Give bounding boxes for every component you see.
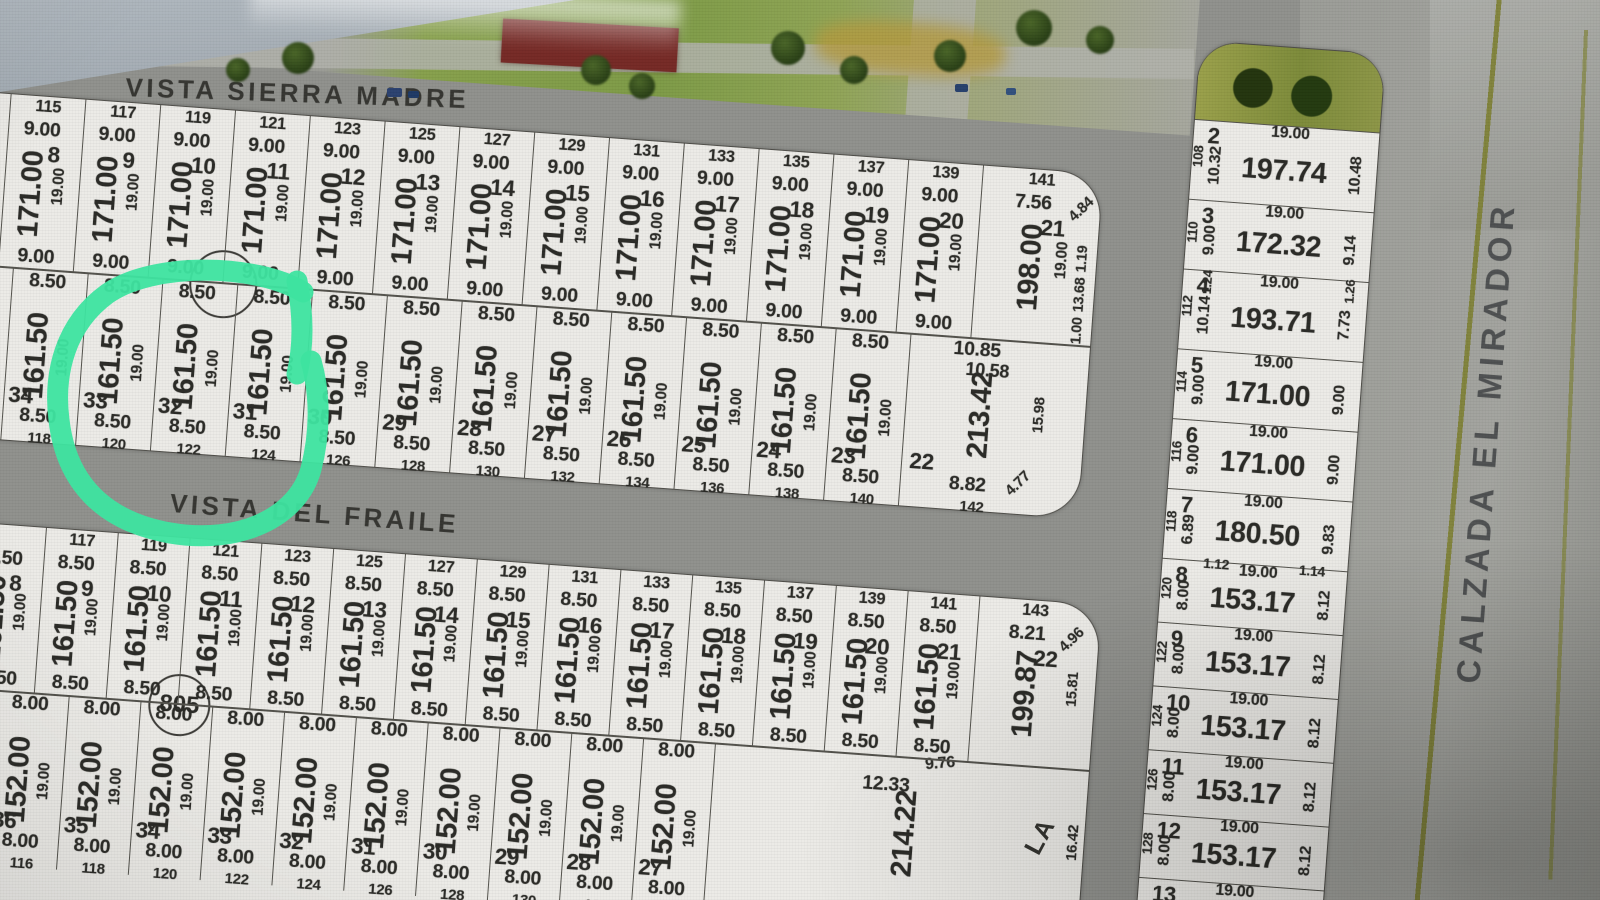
dim-separator: 19.00	[1254, 353, 1294, 374]
lot-area: 171.00	[1224, 376, 1312, 415]
dim-diagonal: 4.96	[1056, 624, 1088, 656]
dim-bottom-left: 1.12	[1203, 555, 1230, 573]
street-number: 132	[550, 468, 575, 487]
lot-area: 153.17	[1199, 709, 1287, 748]
tree-icon	[1016, 10, 1052, 46]
lot-width-bottom: 8.00	[144, 839, 182, 865]
lot-depth: 19.00	[465, 793, 486, 832]
lot-cell-21: 1418.5021161.5019.008.50	[896, 591, 981, 761]
lot-area: 171.00	[1219, 445, 1307, 484]
lot-width-bottom: 9.00	[839, 305, 877, 331]
lot-depth: 19.00	[123, 174, 144, 213]
lot-width: 7.56	[1014, 190, 1052, 216]
lot-width: 8.00	[155, 701, 193, 727]
lot-width-bottom: 8.00	[504, 865, 542, 891]
street-number: 135	[782, 152, 810, 173]
plat-map: VISTA SIERRA MADRE 1159.008171.0019.009.…	[0, 85, 1600, 900]
lot-cell-20: 1398.5020161.5019.008.50	[824, 586, 909, 756]
lot-cell-30: 8.00152.0019.00308.00128	[415, 721, 501, 900]
lot-depth: 19.00	[226, 609, 247, 648]
dim-right: 8.12	[1305, 718, 1325, 749]
lot-depth: 19.00	[10, 593, 31, 632]
lot-width-bottom: 8.50	[625, 713, 663, 739]
lot-width: 8.50	[851, 329, 889, 355]
dim-right: 8.12	[1301, 782, 1321, 813]
street-number: 108	[1190, 145, 1207, 168]
lot-cell-26: 8.50161.5019.00268.50134	[599, 312, 687, 489]
lot-depth: 19.00	[277, 355, 298, 394]
lot-width-bottom: 8.50	[93, 409, 131, 435]
lot-depth: 19.00	[348, 190, 369, 229]
dim-right-edge: 15.81	[1064, 672, 1083, 708]
street-number: 124	[1149, 704, 1166, 727]
lot-cell-14: 1279.0014171.0019.009.00	[447, 127, 535, 304]
lot-depth: 19.00	[53, 338, 74, 377]
dim-right-edge: 15.98	[1029, 397, 1049, 434]
lot-width-bottom: 8.50	[338, 692, 376, 718]
lot-width: 9.00	[546, 156, 584, 182]
lot-area: 171.00	[12, 149, 51, 238]
lot-width-bottom: 9.00	[615, 288, 653, 314]
lot-area: 161.50	[333, 600, 372, 689]
lot-width-bottom: 8.50	[18, 404, 56, 430]
lot-area: 161.50	[621, 621, 660, 710]
lot-depth: 19.00	[34, 762, 55, 801]
lot-area: 161.50	[549, 616, 588, 705]
lot-width-bottom: 8.50	[467, 437, 505, 463]
tree-icon	[226, 58, 250, 82]
lot-width: 8.50	[703, 598, 741, 624]
lot-cell-16: 1318.5016161.5019.008.50	[537, 565, 622, 735]
lot-width-bottom: 8.50	[392, 431, 430, 457]
dim-diag-top: 9.76	[924, 754, 955, 774]
street-number: 141	[930, 594, 958, 615]
lot-area: 161.50	[190, 590, 229, 679]
lot-width-bottom: 8.50	[542, 442, 580, 468]
lot-depth: 19.00	[322, 783, 343, 822]
lot-width: 8.00	[83, 696, 121, 722]
lot-depth: 19.00	[441, 624, 462, 663]
street-label-vista-del-fraile: VISTA DEL FRAILE	[169, 488, 460, 540]
tree-icon	[282, 42, 314, 74]
lot-cell-2: 219.00197.7410810.3210.48	[1189, 119, 1379, 213]
street-number: 121	[212, 541, 240, 562]
car-icon	[1006, 88, 1016, 95]
lot-width: 9.00	[397, 145, 435, 171]
dim-separator: 19.00	[1215, 882, 1255, 900]
street-number: 112	[1179, 295, 1195, 317]
lot-depth: 19.00	[423, 196, 444, 235]
lot-cell-34: 8.50161.5019.00348.50118	[0, 268, 88, 445]
street-number: 127	[427, 557, 455, 578]
street-number: 117	[110, 102, 137, 123]
lot-cell-4: 419.00193.7111210.141.247.731.26	[1178, 269, 1368, 363]
dim-left: 8.00	[1155, 835, 1175, 866]
lot-cell-22: 1438.2122199.874.9615.81	[967, 596, 1092, 769]
lot-width-bottom: 8.50	[617, 448, 655, 474]
street-number: 127	[483, 130, 511, 151]
lot-width-bottom: 8.50	[123, 676, 161, 702]
street-number: 117	[69, 531, 96, 552]
street-number: 125	[408, 124, 436, 145]
lot-width-bottom: 8.50	[51, 671, 89, 697]
tree-icon	[1086, 26, 1114, 54]
lot-width-bottom: 9.00	[465, 277, 503, 303]
pavement-highlight	[1430, 0, 1600, 230]
lot-width: 8.50	[0, 546, 23, 572]
lot-width-bottom: 8.00	[1, 829, 39, 855]
lot-area: 199.87	[1005, 650, 1044, 739]
lot-cell-20: 1399.0020171.0019.009.00	[896, 160, 984, 337]
lot-width: 8.50	[327, 291, 365, 317]
lot-depth: 19.00	[1052, 242, 1073, 281]
lot-width-bottom: 8.82	[948, 472, 986, 498]
dim-right-edge: 16.42	[1063, 824, 1083, 861]
street-number: 122	[1154, 640, 1171, 663]
lot-width-bottom: 8.00	[288, 850, 326, 876]
lot-area: 161.50	[46, 579, 85, 668]
lot-cell-15: 1298.5015161.5019.008.50	[465, 560, 550, 730]
lot-depth: 19.00	[722, 218, 743, 257]
lot-width: 8.50	[402, 296, 440, 322]
street-number: 123	[284, 546, 312, 567]
lot-area: 213.42	[962, 370, 1001, 459]
dim-right: 9.14	[1341, 235, 1361, 266]
dim-separator: 19.00	[1234, 626, 1274, 647]
block-805: 805 8.508161.5019.008.501178.509161.5019…	[0, 506, 1102, 900]
tree-icon	[629, 73, 655, 99]
lot-cell-9: 1178.509161.5019.008.50	[34, 528, 119, 698]
lot-depth: 19.00	[681, 809, 702, 848]
lot-width-bottom: 9.00	[765, 299, 803, 325]
dim-left: 9.00	[1189, 374, 1209, 405]
lot-width: 9.00	[173, 128, 211, 154]
lot-width: 8.21	[1008, 621, 1046, 647]
street-number: 134	[625, 473, 650, 492]
lot-depth: 19.00	[572, 207, 593, 246]
dim-left: 8.00	[1174, 580, 1194, 611]
lot-depth: 19.00	[656, 640, 677, 679]
lot-cell-18: 1359.0018171.0019.009.00	[746, 149, 834, 326]
street-number: 131	[571, 568, 599, 589]
lot-width-bottom: 9.00	[391, 272, 429, 298]
lot-width: 8.50	[701, 318, 739, 344]
lot-depth: 19.00	[728, 646, 749, 685]
lot-width: 8.50	[631, 593, 669, 619]
lot-width-bottom: 8.50	[410, 697, 448, 723]
lot-width-bottom: 8.50	[266, 687, 304, 713]
lot-width: 9.00	[771, 172, 809, 198]
lot-area: 153.17	[1190, 837, 1278, 876]
dim-left: 10.14	[1194, 295, 1215, 335]
dim-left: 9.00	[1184, 444, 1204, 475]
street-number: 123	[333, 119, 361, 140]
lot-area: 171.00	[685, 199, 724, 288]
lot-depth: 19.00	[273, 185, 294, 224]
dim-separator: 19.00	[1243, 493, 1283, 514]
street-number: 118	[27, 429, 51, 448]
street-number: 130	[511, 891, 536, 900]
street-number: 120	[1158, 577, 1175, 600]
dim-left: 9.00	[1200, 224, 1220, 255]
street-number: 137	[786, 583, 814, 604]
lot-depth: 19.00	[576, 377, 597, 416]
lot-area: 180.50	[1213, 515, 1301, 554]
street-number: 129	[499, 562, 527, 583]
lot-cell-25: 8.50161.5019.00258.50136	[674, 317, 762, 494]
lot-area: 161.50	[764, 632, 803, 721]
lot-width: 8.50	[477, 302, 515, 328]
lot-cell-19: 1378.5019161.5019.008.50	[752, 581, 837, 751]
lot-cell-18: 1358.5018161.5019.008.50	[680, 575, 765, 745]
street-number: 121	[259, 113, 287, 134]
lot-number: 22	[908, 448, 934, 476]
dim-bottom-right: 1.14	[1298, 562, 1325, 580]
lot-depth: 19.00	[797, 223, 818, 262]
street-number: 139	[858, 589, 886, 610]
lot-cell-13: 1259.0013171.0019.009.00	[372, 122, 460, 299]
street-number: 126	[368, 880, 393, 899]
lot-depth: 19.00	[369, 619, 390, 658]
lot-width-bottom: 9.00	[690, 294, 728, 320]
lot-depth: 19.00	[127, 344, 148, 383]
lot-width: 8.50	[560, 588, 598, 614]
lot-cell-24: 8.50161.5019.00248.50138	[748, 323, 836, 500]
street-number: 138	[774, 484, 799, 503]
street-number: 115	[35, 97, 62, 118]
plat-map-photo: VISTA SIERRA MADRE 1159.008171.0019.009.…	[0, 0, 1600, 900]
dim-separator: 19.00	[1219, 818, 1259, 839]
lot-width: 8.50	[344, 572, 382, 598]
lot-area: 171.00	[610, 193, 649, 282]
lot-cell-19: 1379.0019171.0019.009.00	[821, 155, 909, 332]
lot-width: 9.00	[846, 178, 884, 204]
lot-cell-10: 1199.0010171.0019.009.00	[148, 105, 236, 282]
lot-width-bottom: 9.00	[17, 244, 55, 270]
lot-area: 161.50	[262, 595, 301, 684]
lot-cell-33: 8.50161.5019.00338.50120	[75, 273, 163, 450]
street-number: 141	[1028, 170, 1056, 191]
dim-separator: 19.00	[1224, 754, 1264, 775]
street-number: 119	[140, 536, 167, 557]
lot-cell-22: 10.8510.58213.42228.821424.7715.98	[898, 334, 1056, 516]
street-number: 126	[1144, 768, 1161, 791]
lot-depth: 19.00	[946, 234, 967, 273]
lot-width-bottom: 8.50	[841, 729, 879, 755]
street-number: 133	[707, 146, 735, 167]
lot-area: 161.50	[693, 627, 732, 716]
street-number: 136	[700, 479, 725, 498]
street-number: 118	[81, 859, 105, 878]
lot-width-bottom: 9.00	[316, 266, 354, 292]
lot-area: 171.00	[161, 160, 200, 249]
lot-depth: 19.00	[647, 212, 668, 251]
street-number: 126	[326, 451, 351, 470]
lot-width: 8.00	[370, 717, 408, 743]
lot-width-bottom: 8.00	[575, 871, 613, 897]
lot-width-bottom: 9.00	[166, 255, 204, 281]
lot-cell-14: 1278.5014161.5019.008.50	[393, 554, 478, 724]
lot-depth: 19.00	[585, 635, 606, 674]
lot-cell-27: 8.00152.0019.00278.00134	[630, 737, 716, 900]
lot-depth: 19.00	[250, 778, 271, 817]
dim-right: 8.12	[1315, 590, 1335, 621]
lot-width-bottom: 9.00	[914, 310, 952, 336]
lot-depth: 19.00	[427, 366, 448, 405]
lot-width-bottom: 9.00	[540, 283, 578, 309]
lot-width: 9.00	[23, 117, 61, 143]
lot-width: 8.50	[776, 324, 814, 350]
street-number: 142	[959, 498, 984, 517]
dim-left-extra: 1.24	[1199, 270, 1216, 295]
lot-depth: 19.00	[513, 630, 534, 669]
lot-cell-10: 1198.5010161.5019.008.50	[106, 533, 191, 703]
lot-cell-12: 1239.0012171.0019.009.00	[297, 116, 385, 293]
street-number: 128	[400, 457, 425, 476]
block-north: 1159.008171.0019.009.001179.009171.0019.…	[0, 77, 1104, 520]
dim-left: 6.89	[1179, 513, 1199, 544]
lot-width: 8.00	[298, 712, 336, 738]
lot-width-bottom: 8.50	[769, 723, 807, 749]
lot-width: 8.50	[552, 307, 590, 333]
lot-depth: 19.00	[800, 651, 821, 690]
dim-right-edge: 1.19	[1073, 245, 1091, 273]
lot-depth: 19.00	[537, 799, 558, 838]
lot-area: 214.22	[885, 789, 924, 878]
lot-area: 153.17	[1204, 646, 1292, 685]
lot-width: 8.00	[442, 723, 480, 749]
lot-width: 8.50	[272, 567, 310, 593]
lot-number: 13	[1151, 881, 1177, 900]
lot-width-bottom: 8.50	[697, 718, 735, 744]
lot-width: 9.00	[696, 167, 734, 193]
street-number: 119	[184, 108, 211, 129]
street-number: 135	[714, 578, 742, 599]
lot-width: 8.50	[178, 280, 216, 306]
lot-cell-9: 1179.009171.0019.009.00	[73, 100, 161, 277]
lot-depth: 19.00	[82, 598, 103, 637]
lot-area: 171.00	[461, 182, 500, 271]
dim-separator: 19.00	[1238, 562, 1278, 583]
lot-area: 153.17	[1194, 773, 1282, 812]
street-number: 130	[475, 462, 500, 481]
dim-right: 9.00	[1325, 454, 1345, 485]
lot-area: 171.00	[386, 177, 425, 266]
tree-icon	[934, 40, 966, 72]
lot-cell-28: 8.50161.5019.00288.50130	[449, 301, 537, 478]
lot-width: 9.00	[621, 161, 659, 187]
lot-width-bottom: 8.00	[73, 834, 111, 860]
dim-right: 8.12	[1296, 846, 1316, 877]
lot-width: 8.50	[129, 556, 167, 582]
lot-cell-30: 8.50161.5019.00308.50126	[300, 290, 388, 467]
lot-width: 9.00	[247, 134, 285, 160]
lot-width: 8.50	[775, 604, 813, 630]
lot-cell-29: 8.00152.0019.00298.00130	[487, 727, 573, 900]
street-number: 120	[101, 435, 126, 454]
lot-width-bottom: 8.50	[766, 459, 804, 485]
dim-diagonal: 4.84	[1065, 194, 1097, 226]
lot-depth: 19.00	[202, 349, 223, 388]
dim-left: 10.32	[1205, 146, 1226, 186]
lot-width-bottom: 8.50	[841, 464, 879, 490]
dim-right: 8.12	[1310, 654, 1330, 685]
dim-separator: 19.00	[1265, 203, 1305, 224]
dim-left: 8.00	[1169, 644, 1189, 675]
dim-right: 9.83	[1319, 524, 1339, 555]
street-number: 143	[1022, 601, 1050, 622]
street-number: 140	[849, 490, 874, 509]
lot-width-bottom: 8.50	[692, 453, 730, 479]
lot-area: 161.50	[118, 584, 157, 673]
lot-width: 8.50	[253, 285, 291, 311]
lot-width: 8.00	[11, 691, 49, 717]
lot-width-bottom: 8.00	[432, 860, 470, 886]
lot-width-bottom: 9.00	[241, 261, 279, 287]
street-number: 128	[439, 886, 464, 900]
street-number: 124	[251, 446, 276, 465]
lot-area: 161.50	[908, 642, 947, 731]
dim-separator: 19.00	[1229, 690, 1269, 711]
lot-depth: 19.00	[726, 388, 747, 427]
lot-width: 8.50	[103, 275, 141, 301]
street-number: 132	[583, 896, 608, 900]
lot-width: 8.50	[57, 551, 95, 577]
lot-cell-17: 1338.5017161.5019.008.50	[608, 570, 693, 740]
lot-area: 197.74	[1240, 152, 1328, 191]
tree-icon	[771, 31, 805, 65]
car-icon	[387, 88, 402, 97]
lot-width: 9.00	[472, 150, 510, 176]
dim-right: 7.73	[1335, 310, 1355, 341]
street-number: 120	[152, 865, 177, 884]
lot-cell-23: 8.50161.5019.00238.50140	[823, 328, 911, 505]
lot-area: 161.50	[477, 611, 516, 700]
lot-cell-27: 8.50161.5019.00278.50132	[524, 306, 612, 483]
lot-width-bottom: 8.50	[318, 426, 356, 452]
lot-width: 8.50	[201, 561, 239, 587]
car-icon	[955, 84, 968, 92]
lot-cell-28: 8.00152.0019.00288.00132	[559, 732, 645, 900]
lot-cell-12: 1238.5012161.5019.008.50	[249, 544, 334, 714]
lot-width: 8.50	[847, 609, 885, 635]
dim-separator: 19.00	[1259, 273, 1299, 294]
lot-area: 198.00	[1011, 223, 1050, 312]
dim-right: 10.48	[1346, 156, 1367, 196]
street-number: 110	[1184, 221, 1200, 243]
lot-width-bottom: 9.00	[91, 250, 129, 276]
lot-depth: 19.00	[154, 603, 175, 642]
dim-left: 8.00	[1160, 771, 1180, 802]
lot-area: 161.50	[405, 605, 444, 694]
lot-depth: 19.00	[501, 371, 522, 410]
street-number: 116	[1168, 440, 1184, 462]
lot-width-bottom: 8.50	[195, 681, 233, 707]
trees-icon	[1195, 41, 1385, 132]
lot-width: 8.50	[627, 313, 665, 339]
lot-depth: 19.00	[872, 656, 893, 695]
lot-width-bottom: 8.50	[482, 702, 520, 728]
lot-area: 171.00	[835, 210, 874, 299]
lot-width: 9.00	[920, 183, 958, 209]
lot-area: 171.00	[236, 166, 275, 255]
lot-depth: 19.00	[393, 788, 414, 827]
lot-area: 171.00	[311, 171, 350, 260]
lot-area: 161.50	[836, 637, 875, 726]
dim-separator: 19.00	[1270, 124, 1310, 145]
street-number: 128	[1140, 832, 1157, 855]
lot-depth: 19.00	[801, 393, 822, 432]
